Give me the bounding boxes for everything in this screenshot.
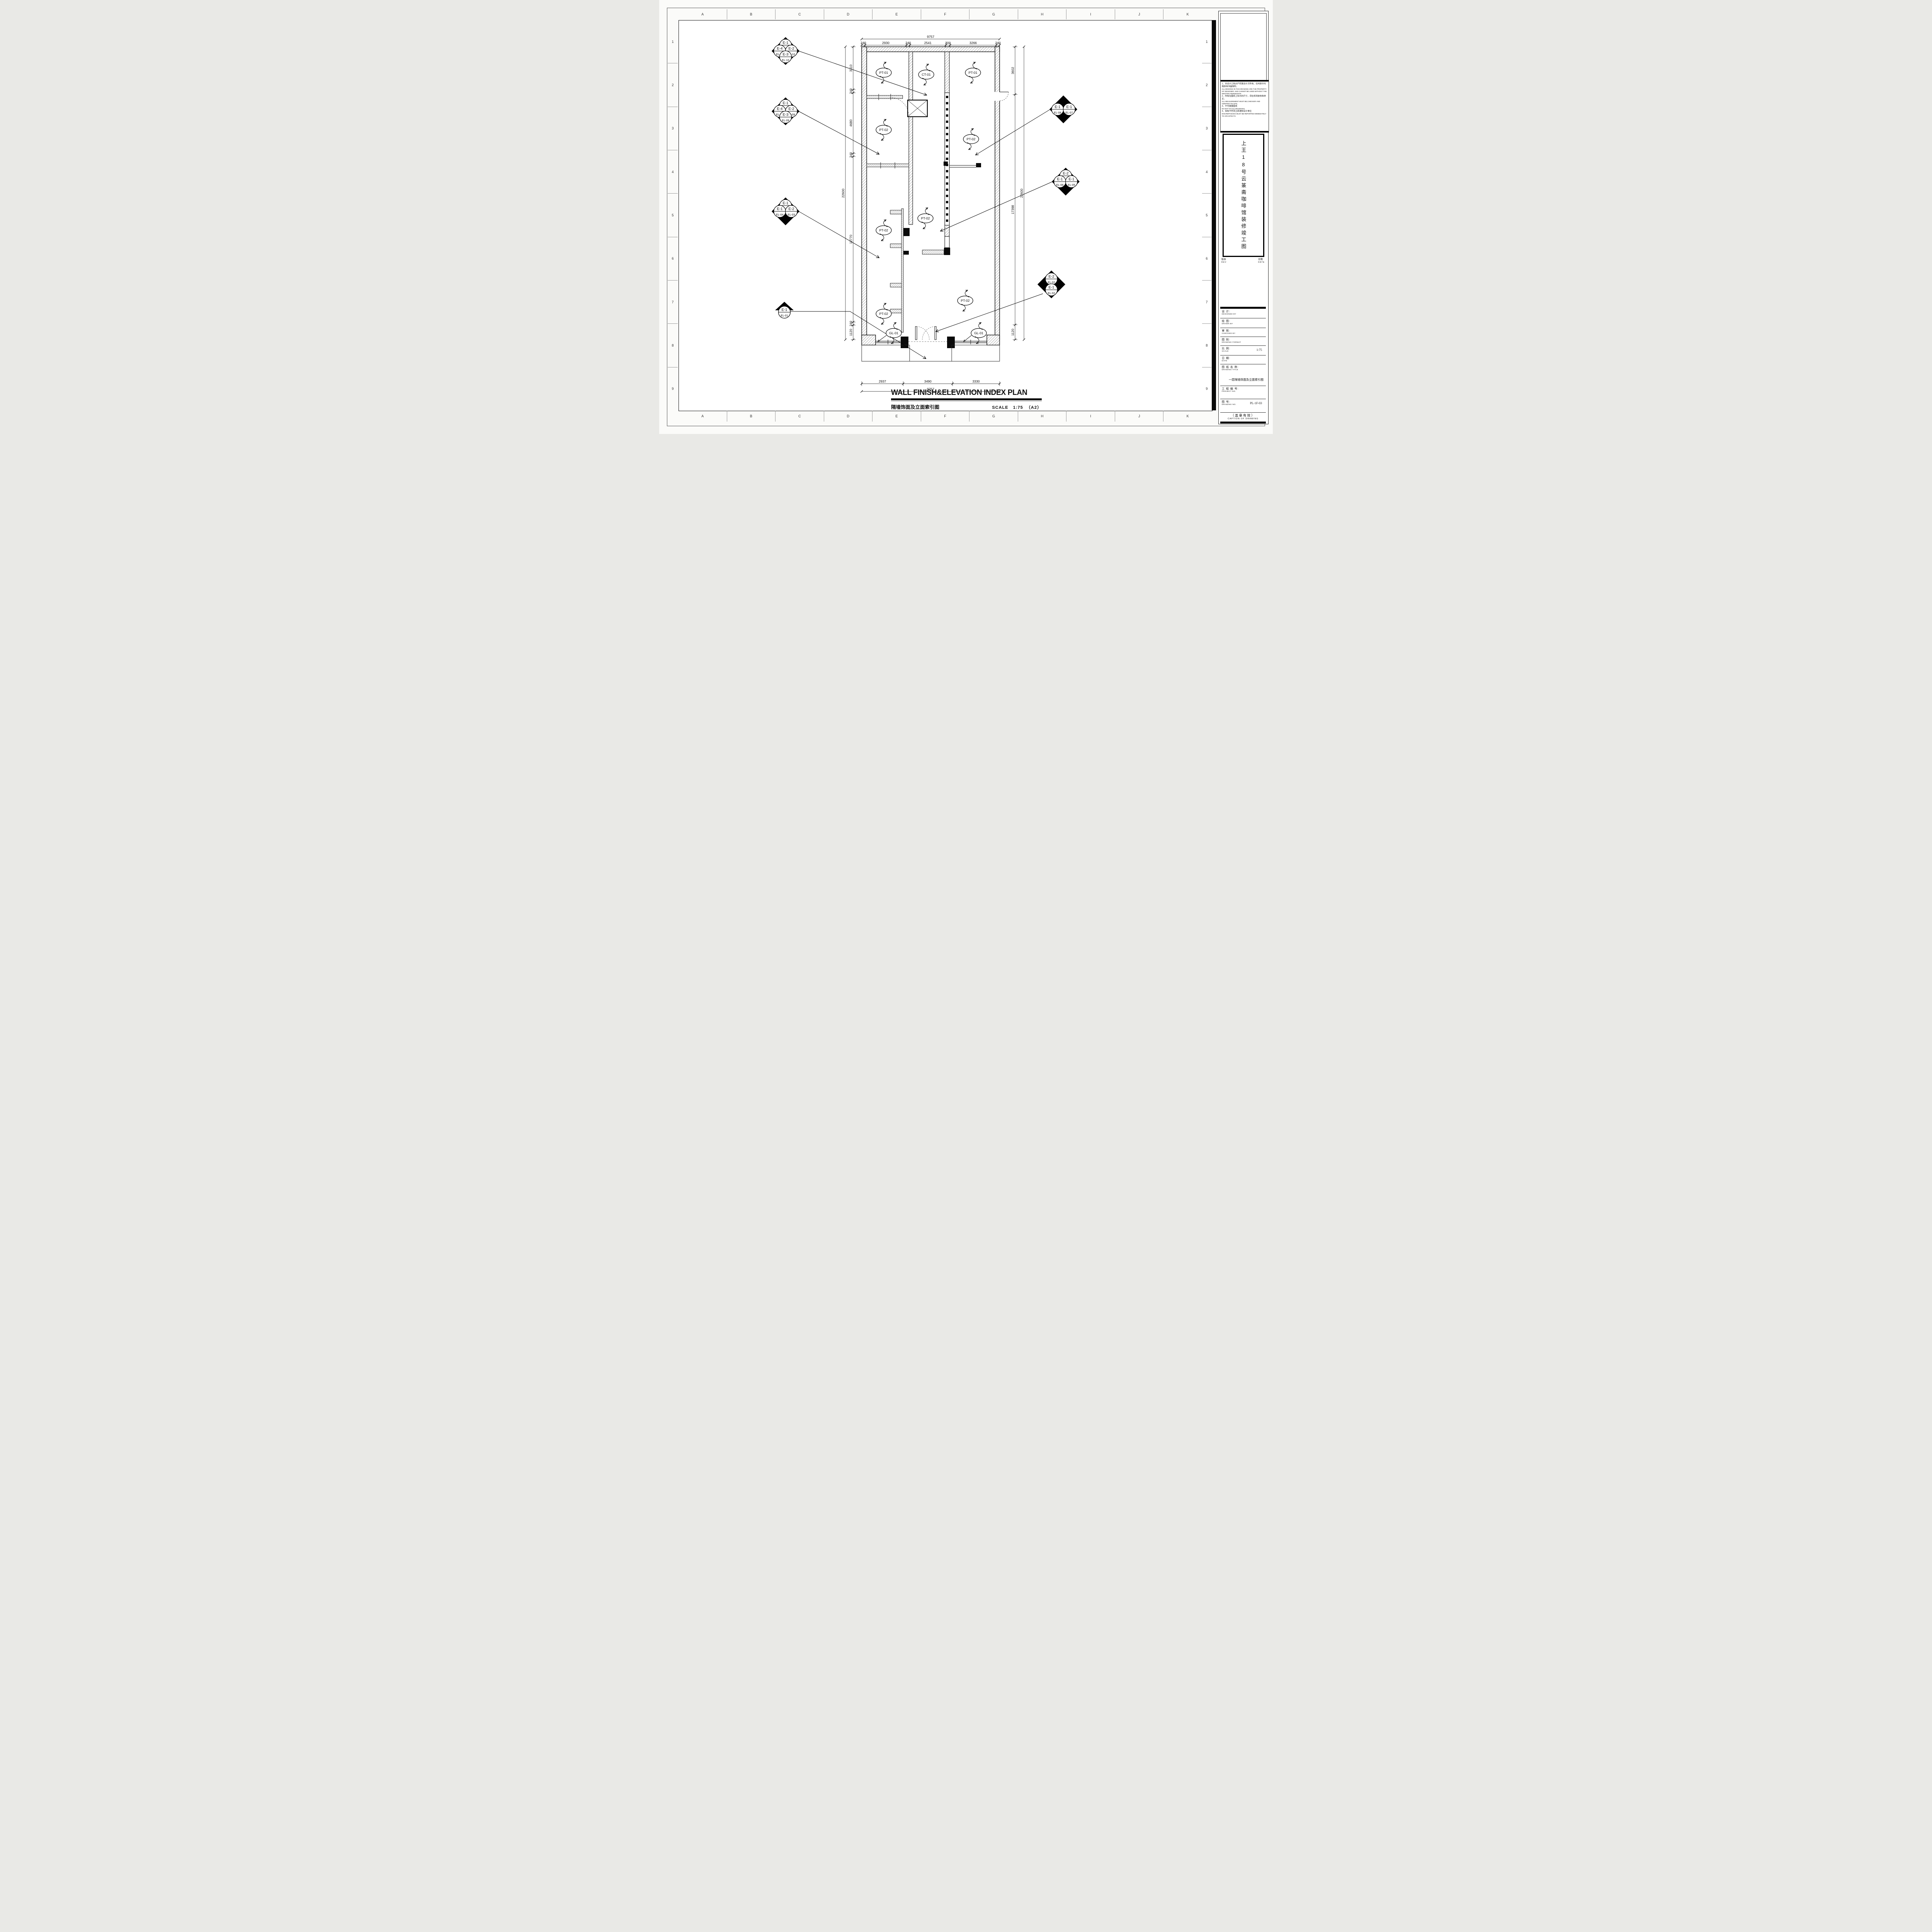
elevation-code: E-1 [783, 201, 789, 206]
note-line: DISCREPANCIES MUST BE REPORTED IMMEDIATE… [1222, 113, 1267, 117]
leader-lines [790, 51, 1053, 359]
field-value: 一层隔墙饰面及立面索引图 [1229, 378, 1264, 382]
elevation-sheet: EL-06 [1056, 184, 1064, 187]
tag-leader-line [878, 335, 886, 342]
field-label-cn: 绘 图: [1222, 319, 1266, 323]
rev-label-en: REV [1221, 261, 1226, 264]
marker-leader-line [976, 109, 1050, 155]
revision-header: 版本 REV 日期 DATE [1220, 259, 1266, 268]
note-line: 3、不可度量图纸 [1222, 105, 1267, 108]
titleblock-field: 图 纸 名 称:DRAWING TITLE一层隔墙饰面及立面索引图 [1220, 364, 1266, 386]
finish-tag[interactable]: PT-01 [876, 62, 891, 83]
plan-interior-walls [890, 52, 976, 332]
note-line: 2、所有在图纸上标示的尺寸，须在现场复核和修正。 [1222, 95, 1267, 100]
titleblock-field: 图 别:DRAWING FORMAT [1220, 337, 1266, 346]
marker-leader-line [790, 311, 926, 359]
plan-exterior-walls [862, 47, 1000, 345]
drawing-scale: SCALE 1:75 （A2） [992, 404, 1042, 410]
entry-vestibule-outline [862, 345, 1000, 361]
dimension-value: 22600 [1020, 189, 1024, 198]
titleblock-notes: 1、本设计之知识产权属设计方所有，任何复印均需获得书面授权。ALL DESIGN… [1220, 80, 1269, 133]
dimension-value: 2930 [882, 41, 889, 45]
dimension-value: 3330 [973, 379, 980, 383]
title-underline-thin [891, 401, 1042, 401]
dimension-value: 240 [995, 41, 1001, 45]
finish-tag-label: PT-02 [921, 216, 930, 220]
dimension-value: 3602 [1011, 67, 1015, 74]
elevation-code: E-1 [783, 41, 789, 45]
field-label-en: PROJECT NO. [1222, 391, 1266, 393]
dimension-value: 1120 [849, 329, 853, 336]
scale-label: SCALE [992, 405, 1008, 410]
finish-tag-label: PT-02 [961, 299, 970, 303]
revision-table-empty [1220, 268, 1266, 307]
elevation-code: E-1 [782, 308, 787, 312]
elevation-sheet: EL-02 [1048, 292, 1055, 295]
field-label-cn: 审 核: [1222, 329, 1266, 333]
finish-tag-label: PT-01 [879, 71, 888, 75]
elevation-code: E-2 [1049, 275, 1054, 279]
dimension-value: 240 [849, 321, 853, 326]
drawing-title-en: WALL FINISH&ELEVATION INDEX PLAN [891, 388, 1036, 397]
finish-tag[interactable]: PT-02 [957, 290, 973, 311]
elevation-sheet: EL-01 [781, 315, 788, 317]
dimension-value: 3266 [969, 41, 977, 45]
elevation-code: E-3 [783, 53, 789, 57]
dimension-value: 300 [945, 41, 951, 45]
field-label-cn: 工 程 编 号: [1222, 387, 1266, 391]
finish-tag[interactable]: PT-02 [876, 119, 891, 140]
elevation-sheet: EL-03 [788, 214, 795, 216]
finish-tag[interactable]: PT-02 [918, 208, 933, 229]
dimension-value: 3490 [924, 379, 932, 383]
elevation-marker[interactable]: E-1EL-10E-4EL-10E-2EL-10E-3EL-10 [772, 37, 799, 65]
field-label-en: DESIGNED BY [1222, 313, 1266, 315]
elevation-code: E-4 [777, 107, 783, 111]
sheet-size: （A2） [1026, 405, 1042, 410]
elevation-code: E-1 [1069, 177, 1075, 182]
elevation-code: E-4 [777, 47, 783, 51]
marker-leader-line [799, 111, 879, 154]
field-label-en: DRAWING TITLE [1222, 369, 1266, 371]
elevation-code: E-1 [1055, 105, 1061, 109]
titleblock-panel: 1、本设计之知识产权属设计方所有，任何复印均需获得书面授权。ALL DESIGN… [1218, 11, 1269, 424]
field-label-en: DRAWN BY [1222, 323, 1266, 325]
elevation-sheet: EL-04 [776, 214, 784, 216]
floor-plan-canvas: 2402930240254130032662402937349033303310… [659, 0, 1273, 434]
tag-leader-line [964, 335, 971, 342]
elevation-code: E-2 [789, 107, 794, 111]
titleblock-field: 审 核:CHECKED BY [1220, 328, 1266, 337]
field-label-en: CHECKED BY [1222, 333, 1266, 335]
dimension-value: 1120 [1011, 328, 1015, 336]
finish-tag-label: PT-02 [879, 228, 888, 232]
finish-tag[interactable]: GL-01 [971, 323, 986, 344]
door-right-wall [995, 92, 1009, 101]
finish-tag[interactable]: PT-02 [876, 303, 891, 324]
finish-tags: PT-01CT-01PT-01PT-02PT-02PT-02PT-02PT-02… [876, 62, 986, 344]
finish-tag-label: CT-01 [922, 73, 930, 77]
drawing-title-block: WALL FINISH&ELEVATION INDEX PLAN 隔墙饰面及立面… [891, 388, 1042, 410]
title-underline-thick [891, 398, 1042, 400]
elevation-code: E-2 [1063, 172, 1069, 176]
dimension-value: 240 [849, 88, 853, 94]
elevation-sheet: EL-10 [782, 59, 789, 62]
note-line: 1、本设计之知识产权属设计方所有，任何复印均需获得书面授权。 [1222, 83, 1267, 88]
project-title-box: 上王18号云篆斋咖啡馆装修竣工图 [1223, 134, 1264, 257]
finish-tag[interactable]: CT-01 [918, 64, 934, 85]
note-line: ALL MEASUREMENT MUST BE,CHECKER AND VERI… [1222, 100, 1267, 105]
elevation-code: E-1 [777, 207, 783, 211]
marker-leader-line [936, 294, 1043, 332]
finish-tag-label: PT-02 [879, 128, 888, 132]
titleblock-fields: 设 计:DESIGNED BY绘 图:DRAWN BY审 核:CHECKED B… [1220, 309, 1266, 413]
finish-tag-label: PT-01 [969, 71, 978, 75]
dimension-value: 2541 [924, 41, 932, 45]
caption-en: CAPTION OF DRAWING [1220, 418, 1266, 420]
elevation-sheet: EL-05 [1068, 184, 1075, 187]
elevation-code: E-1 [783, 101, 789, 105]
elevation-marker[interactable]: E-1EL-09E-4EL-09E-2EL-09E-3EL-09 [772, 97, 799, 125]
field-value: PL-1F-03 [1250, 401, 1262, 405]
elevation-sheet: EL-08 [1054, 112, 1061, 114]
dimension-value: 4680 [849, 119, 853, 127]
drawing-sheet: ABCDEFGHIJK ABCDEFGHIJK 123456789 123456… [659, 0, 1273, 434]
elevation-sheet: EL-07 [1066, 112, 1073, 114]
titleblock-field: 绘 图:DRAWN BY [1220, 318, 1266, 328]
scale-value: 1:75 [1013, 405, 1023, 410]
dimension-value: 2937 [879, 379, 886, 383]
elevation-code: E-1 [1049, 286, 1054, 290]
elevation-marker[interactable]: E-1EL-01 [775, 302, 794, 318]
finish-tag[interactable]: PT-02 [876, 220, 891, 241]
dimension-value: 17398 [1011, 205, 1015, 214]
door-top-left [890, 97, 909, 116]
finish-tag-label: PT-02 [967, 137, 976, 141]
elevation-sheet: EL-09 [782, 119, 789, 122]
titleblock-caption: （盖章有效） CAPTION OF DRAWING [1220, 413, 1266, 422]
elevation-marker[interactable]: E-1EL-08E-1EL-07 [1049, 95, 1077, 123]
elevation-code: E-2 [789, 47, 794, 51]
titleblock-field: 日 期:DATE [1220, 355, 1266, 364]
elevation-code: E-1 [1066, 105, 1072, 109]
field-label-cn: 图 纸 名 称: [1222, 365, 1266, 369]
rev-label-cn: 版本 [1221, 259, 1226, 261]
field-label-en: DATE [1222, 360, 1266, 362]
titleblock-logo-box [1220, 13, 1267, 80]
storefront-glazing [876, 340, 987, 344]
finish-tag-label: GL-01 [889, 331, 898, 335]
stud-wall-blocking [946, 96, 948, 222]
elevation-marker[interactable]: E-2EL-04E-1EL-06E-1EL-05 [1052, 168, 1080, 196]
field-label-cn: 设 计: [1222, 310, 1266, 313]
finish-tag[interactable]: GL-01 [886, 323, 901, 344]
date-label-en: DATE [1258, 261, 1265, 264]
note-line: 4、如有不符须立即通知设计单位 [1222, 110, 1267, 113]
finish-tag[interactable]: PT-02 [963, 129, 979, 150]
elevation-marker[interactable]: E-1EL-03E-1EL-04E-2EL-03 [772, 197, 799, 225]
date-label-cn: 日期 [1258, 259, 1265, 261]
titleblock-field: 设 计:DESIGNED BY [1220, 309, 1266, 318]
finish-tag-label: GL-01 [974, 331, 983, 335]
elevation-code: E-2 [789, 207, 794, 211]
marker-leader-line [799, 211, 879, 258]
dimension-value: 9757 [927, 35, 934, 39]
dimension-value: 240 [849, 152, 853, 158]
caption-cn: （盖章有效） [1220, 413, 1266, 418]
elevation-code: E-1 [1057, 177, 1063, 182]
finish-tag-label: PT-02 [879, 312, 888, 316]
field-label-cn: 图 别: [1222, 338, 1266, 342]
titleblock-field: 工 程 编 号:PROJECT NO. [1220, 386, 1266, 399]
titleblock-field: 比 例:SCALE1:75 [1220, 346, 1266, 355]
field-label-cn: 日 期: [1222, 356, 1266, 360]
titleblock-bottom-bar [1220, 422, 1266, 423]
dimension-value: 3310 [849, 65, 853, 72]
finish-tag[interactable]: PT-01 [965, 62, 981, 83]
note-line: ALL DESIGNS IN THIS DRAWING ARE THE PROP… [1222, 88, 1267, 95]
drawing-title-cn: 隔墙饰面及立面索引图 [891, 403, 939, 410]
dimension-value: 240 [861, 41, 866, 45]
elevation-code: E-3 [783, 113, 789, 117]
dimension-value: 240 [905, 41, 911, 45]
entry-double-door [908, 327, 947, 342]
field-value: 1:75 [1257, 348, 1262, 352]
field-label-en: DRAWING FORMAT [1222, 342, 1266, 344]
titleblock-field: 图 号:DRAWING NO.PL-1F-03 [1220, 399, 1266, 413]
project-title-vertical: 上王18号云篆斋咖啡馆装修竣工图 [1240, 141, 1247, 250]
dimension-value: 22600 [841, 189, 845, 198]
